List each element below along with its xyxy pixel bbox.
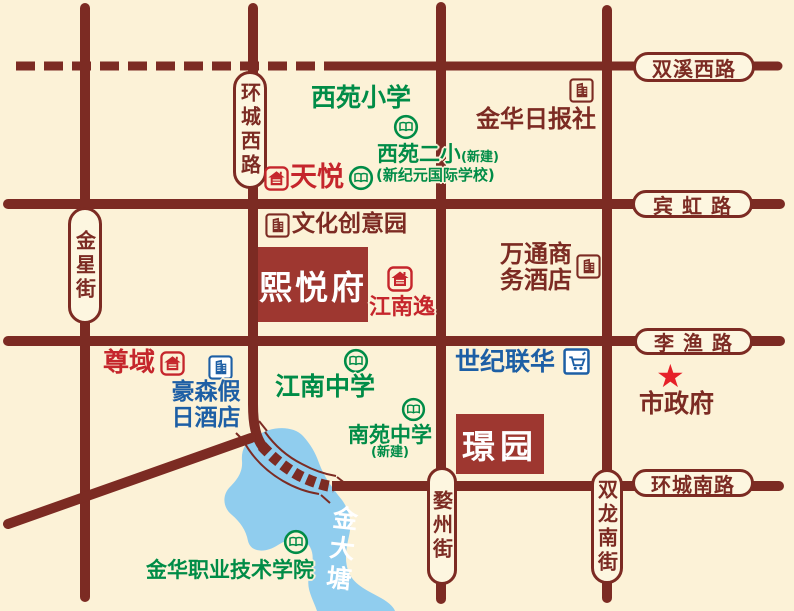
label-jinhua-daily: 金华日报社 — [476, 107, 596, 132]
label-jinhua-polytechnic: 金华职业技术学院 — [146, 559, 314, 581]
road-label-binhong: 宾 虹 路 — [632, 190, 753, 218]
location-map: 双溪西路 宾 虹 路 李 渔 路 环城南路 环城西路 金星街 婺州街 双龙南街 … — [0, 0, 794, 611]
hotel-icon — [208, 355, 233, 380]
label-haosen-hotel: 豪森假 日酒店 — [169, 380, 243, 432]
label-cultural-park: 文化创意园 — [292, 212, 407, 236]
wantong-line1: 万通商 — [494, 241, 578, 267]
road-label-liyu: 李 渔 路 — [634, 328, 753, 355]
residence-icon — [264, 166, 289, 191]
government-star-icon: ★ — [656, 360, 685, 392]
nanyuan-name: 南苑中学 — [340, 424, 440, 446]
project-jingyuan: 璟园 — [456, 414, 544, 474]
haosen-line1: 豪森假 — [169, 380, 243, 406]
road-label-huancheng-west: 环城西路 — [233, 71, 267, 189]
label-xiyuan-second: 西苑二小(新建) — [377, 143, 499, 165]
school-icon — [393, 114, 419, 140]
label-city-government: 市政府 — [639, 391, 714, 417]
xiyuan-second-note: (新建) — [461, 150, 499, 165]
residence-icon — [387, 266, 413, 292]
label-xinjiyuan-school: (新纪元国际学校) — [376, 168, 495, 184]
label-xiyuan-primary: 西苑小学 — [311, 85, 411, 111]
haosen-line2: 日酒店 — [169, 406, 243, 432]
road-label-huancheng-south: 环城南路 — [632, 469, 754, 497]
school-icon — [401, 397, 426, 422]
label-jiangnan-middle: 江南中学 — [275, 374, 375, 400]
road-label-shuangxi-west: 双溪西路 — [633, 52, 755, 82]
label-jiangnan-yi: 江南逸 — [369, 296, 435, 319]
label-wantong-hotel: 万通商 务酒店 — [494, 241, 578, 294]
shopping-cart-icon — [563, 348, 590, 375]
label-zunyu: 尊域 — [103, 350, 155, 377]
school-icon — [283, 529, 309, 555]
road-label-jinxing-street: 金星街 — [68, 207, 102, 324]
label-tianyue: 天悦 — [290, 164, 344, 192]
label-century-lianhua: 世纪联华 — [455, 349, 555, 375]
road-label-wuzhou-street: 婺州街 — [427, 467, 457, 585]
label-nanyuan-middle: 南苑中学 (新建) — [340, 424, 440, 460]
project-xiyuefu: 熙悦府 — [258, 247, 368, 322]
xiyuan-second-name: 西苑二小 — [377, 142, 461, 166]
office-building-icon — [576, 254, 601, 279]
nanyuan-note: (新建) — [340, 446, 440, 460]
school-icon — [348, 165, 374, 191]
road-label-shuanglong-south: 双龙南街 — [591, 469, 623, 584]
office-building-icon — [569, 78, 594, 103]
office-building-icon — [265, 213, 290, 238]
school-icon — [343, 348, 369, 374]
wantong-line2: 务酒店 — [494, 267, 578, 293]
residence-icon — [160, 351, 185, 376]
